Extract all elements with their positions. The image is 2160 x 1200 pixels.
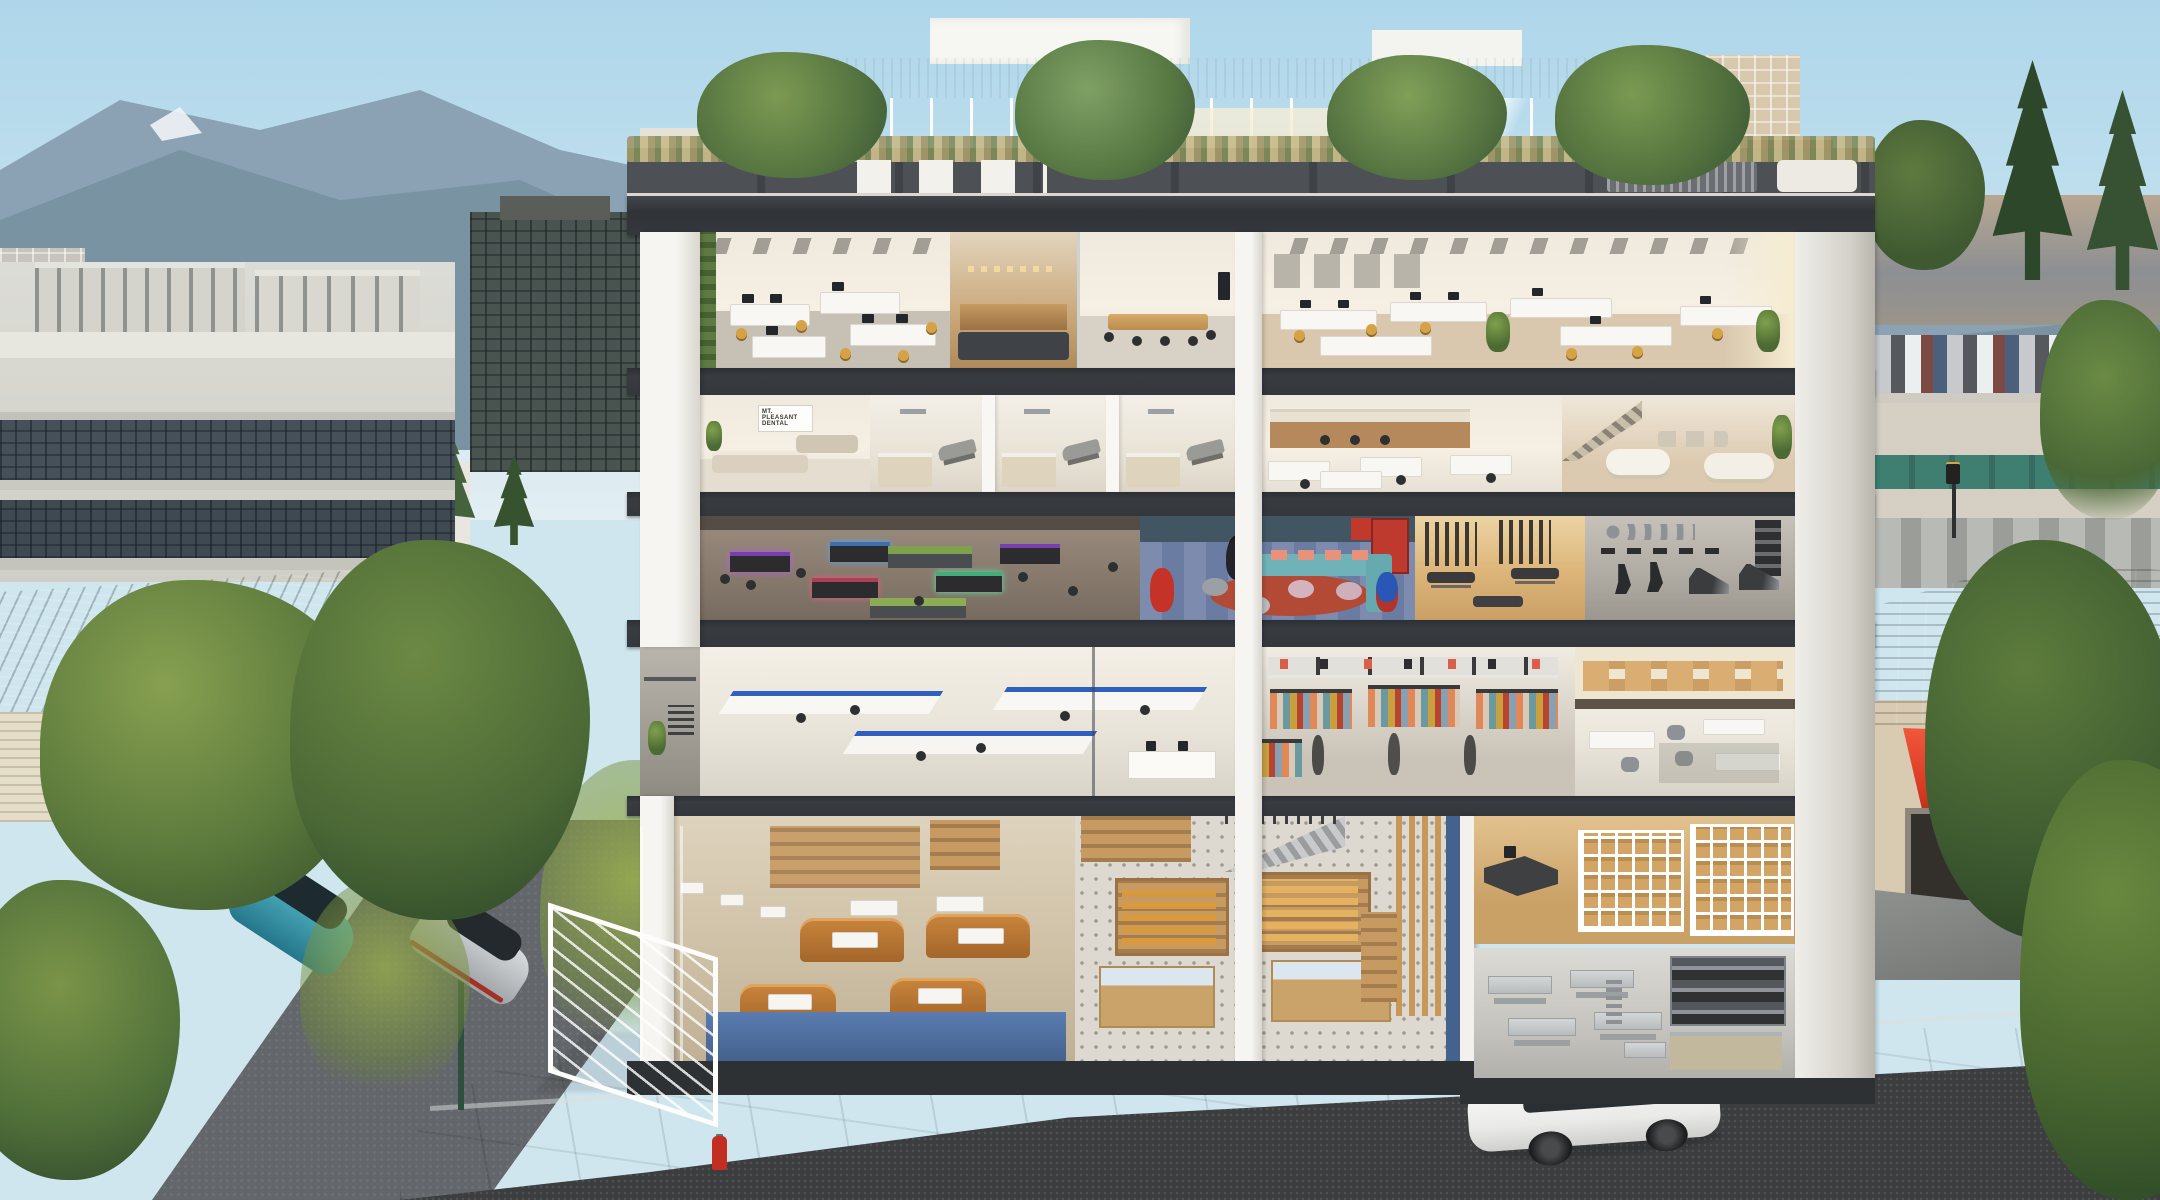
floor3-gym (1585, 516, 1795, 620)
task-chair (926, 322, 937, 333)
mezzanine-storage (1474, 816, 1795, 944)
booth-table (958, 928, 1004, 944)
dental-chair-3 (1185, 439, 1225, 462)
office-chair (1396, 475, 1406, 485)
cafe-table (850, 900, 898, 916)
meeting-chair (1132, 336, 1142, 346)
gaming-table-2 (830, 542, 890, 562)
bar-stool (914, 596, 924, 606)
bakery-kitchen (1474, 948, 1795, 1078)
meeting-table (1108, 314, 1208, 330)
floor2-laboratory (700, 647, 1240, 796)
art-frames (1274, 254, 1424, 288)
stool (1320, 435, 1330, 445)
gaming-table-3 (812, 578, 878, 598)
plush-flash (1150, 568, 1174, 612)
roof-deck (0, 332, 455, 358)
desk-cluster (752, 336, 826, 358)
market-side-counter (1361, 912, 1397, 1002)
balcony-rail (644, 677, 696, 681)
desk-row (1320, 336, 1432, 356)
showroom-sofa-2 (1704, 453, 1774, 479)
white-desk (1450, 455, 1512, 475)
booth-table (918, 988, 962, 1004)
market-gondola-1 (1115, 878, 1229, 956)
prep-table-4 (1594, 1012, 1662, 1030)
floor3-kids-lounge (1140, 516, 1415, 620)
floor5-open-office-left (700, 232, 950, 368)
floor4-showroom (1562, 395, 1795, 492)
potted-palm (1756, 310, 1780, 352)
massage-table-1 (1427, 572, 1475, 583)
gym-ball-rack (1605, 524, 1695, 540)
floor3-gaming-cafe (700, 516, 1140, 620)
task-chair (796, 320, 807, 331)
kraft-bag-shelf-1 (1578, 830, 1684, 932)
treadmill-1 (1689, 568, 1729, 594)
bakery-sink (1624, 1042, 1666, 1058)
cutaway-building: MT. PLEASANT DENTAL (627, 0, 1875, 1105)
left-tree-large-2 (290, 540, 590, 920)
reception-lights (968, 266, 1058, 272)
bottle-rows (1122, 885, 1216, 945)
waiting-sofa-2 (796, 435, 858, 453)
showroom-plant (1772, 415, 1792, 459)
terrace-chairs (857, 160, 1047, 197)
lab-counter-2 (843, 731, 1097, 754)
bag-display (1280, 659, 1550, 669)
prep-table-1 (1488, 976, 1552, 994)
op-cabinet-2 (1002, 453, 1056, 487)
monitor (1590, 316, 1601, 324)
atelier-mezzanine (1575, 647, 1795, 709)
cafe-blue-base (706, 1012, 1066, 1061)
stool (1380, 435, 1390, 445)
base-slab (627, 1061, 1474, 1095)
fire-hydrant (712, 1136, 727, 1170)
desk-cluster (850, 324, 936, 346)
dental-chair-1 (937, 439, 977, 462)
bar-stool (796, 568, 806, 578)
mannequin-2 (1388, 733, 1400, 775)
spin-bike-2 (1647, 562, 1663, 592)
bistro-table (760, 906, 786, 918)
monitor (742, 294, 754, 303)
clothes-rack-front (1260, 739, 1302, 777)
window-band-upper (0, 412, 455, 490)
cafe-table (936, 896, 984, 912)
floor4-dental-waiting: MT. PLEASANT DENTAL (700, 395, 870, 492)
center-column (1235, 232, 1262, 1067)
dental-sign: MT. PLEASANT DENTAL (758, 405, 813, 432)
right-tree-top (2040, 300, 2160, 520)
rooftop-tree-1 (697, 52, 887, 178)
ground-market (1075, 816, 1460, 1061)
monitor (862, 314, 874, 323)
monitor (896, 314, 908, 323)
left-office-building (0, 262, 455, 582)
task-chair (1294, 330, 1305, 341)
prep-table-3 (1508, 1018, 1576, 1036)
clothes-rack-2 (1368, 685, 1460, 727)
floor4-dental-operatories (870, 395, 1240, 492)
ground-divider-wall (1460, 816, 1474, 1078)
floor2-atelier (1575, 647, 1795, 796)
gym-weight-rack (1755, 520, 1781, 576)
monitor (766, 326, 778, 335)
task-chair (736, 328, 747, 339)
gaming-planter-1 (888, 546, 972, 568)
lab-chair (976, 743, 986, 753)
bg-dark-glass-tower (470, 212, 640, 472)
floor4-office-kitchen (1260, 395, 1562, 492)
bistro-table (720, 894, 744, 906)
terrace-lounger (1777, 160, 1857, 192)
plush-superman (1376, 572, 1398, 612)
market-blue-wall (1446, 816, 1460, 1061)
parapet-fins-2 (255, 270, 420, 338)
right-pier (1795, 232, 1875, 1078)
slat-screen-2 (1499, 520, 1551, 564)
desk-cluster (820, 292, 900, 314)
desk-row (1560, 326, 1672, 346)
task-chair (1366, 324, 1377, 335)
monitor (770, 294, 782, 303)
kids-poster (1351, 518, 1371, 540)
beanbag-pink-1 (1288, 580, 1314, 598)
parapet-fins-1 (35, 262, 245, 338)
meeting-tv (1218, 272, 1230, 300)
bread-rows (1260, 879, 1358, 941)
dental-sign-line1: MT. PLEASANT (762, 409, 810, 421)
task-chair (1566, 348, 1577, 359)
massage-table-3 (1473, 596, 1523, 607)
gaming-table-5 (1000, 544, 1060, 564)
office-chair (1300, 479, 1310, 489)
monitor (1410, 292, 1421, 300)
desk-row (1510, 298, 1612, 318)
balcony-plant (648, 721, 666, 755)
gaming-table-1 (730, 552, 790, 572)
lab-chair (796, 713, 806, 723)
floor5-reception-lounge (950, 232, 1077, 368)
lab-chair (1140, 705, 1150, 715)
lab-counter-3 (993, 687, 1207, 710)
potted-palm (1486, 312, 1510, 352)
left-pier (640, 232, 700, 647)
dental-sign-line2: DENTAL (762, 421, 810, 427)
showroom-armchairs (1658, 431, 1728, 447)
market-gondola-2 (1253, 872, 1371, 952)
rooftop-tree-3 (1327, 55, 1507, 180)
atelier-desk-2 (1703, 719, 1765, 735)
waiting-sofa-1 (712, 451, 808, 473)
green-wall (700, 232, 716, 368)
op-light-arms (900, 409, 1220, 414)
kitchen-back-counter (1270, 409, 1470, 448)
task-chair (1632, 346, 1643, 357)
stool (1350, 435, 1360, 445)
op-cabinet-1 (878, 453, 932, 487)
cafe-backbar (930, 820, 1000, 870)
bar-stool (1018, 572, 1028, 582)
market-back-shelf (1081, 816, 1191, 862)
lab-monitor (1146, 741, 1156, 751)
atelier-armchair-1 (1667, 725, 1685, 740)
beanbag-grey-1 (1202, 578, 1228, 596)
lab-glass-partition (1092, 647, 1095, 796)
clothes-rack-3 (1476, 689, 1558, 729)
prep-table-2 (1570, 970, 1634, 988)
lab-counter-1 (719, 691, 943, 714)
floor3-massage-studio (1415, 516, 1585, 620)
floor5-meeting-room (1077, 232, 1237, 368)
bar-stool (746, 580, 756, 590)
gaming-table-4 (936, 572, 1002, 592)
speed-rack (1606, 978, 1622, 1024)
bar-stool (1108, 562, 1118, 572)
kraft-bag-shelf-2 (1690, 824, 1794, 936)
atelier-rug (1659, 743, 1779, 783)
base-slab-right (1460, 1078, 1875, 1104)
gym-bench-row (1601, 548, 1721, 554)
bakery-cabinets (1670, 1032, 1782, 1070)
lab-chair (850, 705, 860, 715)
task-chair (840, 348, 851, 359)
mezzanine-monitor (1504, 846, 1516, 858)
rooftop-tree-4 (1555, 45, 1750, 185)
monitor (832, 282, 844, 291)
lab-reception-desk (1128, 751, 1216, 779)
showroom-sofa-1 (1606, 449, 1670, 475)
op-cabinet-3 (1126, 453, 1180, 487)
lab-chair (916, 751, 926, 761)
massage-table-2 (1511, 568, 1559, 579)
meeting-chair (1160, 336, 1170, 346)
task-chair (1712, 328, 1723, 339)
clothes-rack-1 (1270, 689, 1352, 729)
task-chair (1420, 322, 1431, 333)
dental-chair-2 (1061, 439, 1101, 462)
task-chair (898, 350, 909, 361)
rooftop-tree-2 (1015, 40, 1195, 180)
roof-slab (627, 193, 1875, 235)
floor5-open-office-right (1260, 232, 1795, 368)
market-case-1 (1099, 966, 1215, 1028)
balcony-chairs (668, 705, 694, 735)
deck-ovens (1670, 956, 1786, 1026)
scene-root: { "scene": { "type": "architectural cuta… (0, 0, 2160, 1200)
cafe-bookshelf (770, 826, 920, 888)
floor2-balcony (640, 647, 700, 796)
monitor (1338, 300, 1349, 308)
monitor (1700, 296, 1711, 304)
monitor (1448, 292, 1459, 300)
gaming-ceiling (700, 516, 1140, 530)
slat-screen-1 (1425, 522, 1477, 566)
atelier-armchair-3 (1621, 757, 1639, 772)
reception-counter (960, 304, 1067, 330)
office-chair (1486, 473, 1496, 483)
bg-right-tree (1865, 120, 1985, 270)
kids-cushions-salmon (1244, 550, 1378, 560)
meeting-chair (1188, 336, 1198, 346)
booth-table (768, 994, 812, 1010)
lab-chair (1060, 711, 1070, 721)
white-desk (1320, 471, 1382, 489)
lab-monitor (1178, 741, 1188, 751)
waiting-plant (706, 421, 722, 451)
bar-stool (1068, 586, 1078, 596)
spin-bike-1 (1615, 564, 1631, 594)
bg-dark-glass-tower-cap (500, 196, 610, 220)
desk-row (1390, 302, 1487, 322)
reception-sofa (958, 332, 1069, 360)
traffic-light-head (1946, 462, 1960, 484)
bar-stool (720, 574, 730, 584)
mannequin-3 (1464, 735, 1476, 775)
floor2-apparel-boutique (1260, 647, 1575, 796)
workshop-tables (1583, 661, 1783, 691)
mezzanine-desk (1484, 856, 1558, 896)
monitor (1300, 300, 1311, 308)
mannequin-1 (1312, 735, 1324, 775)
meeting-chair (1104, 332, 1114, 342)
booth-table (832, 932, 878, 948)
desk-row (1280, 310, 1377, 330)
beanbag-pink-2 (1336, 582, 1362, 600)
monitor (1532, 288, 1543, 296)
left-bush (0, 880, 180, 1180)
meeting-chair (1206, 330, 1216, 340)
atelier-desk-1 (1589, 731, 1655, 749)
